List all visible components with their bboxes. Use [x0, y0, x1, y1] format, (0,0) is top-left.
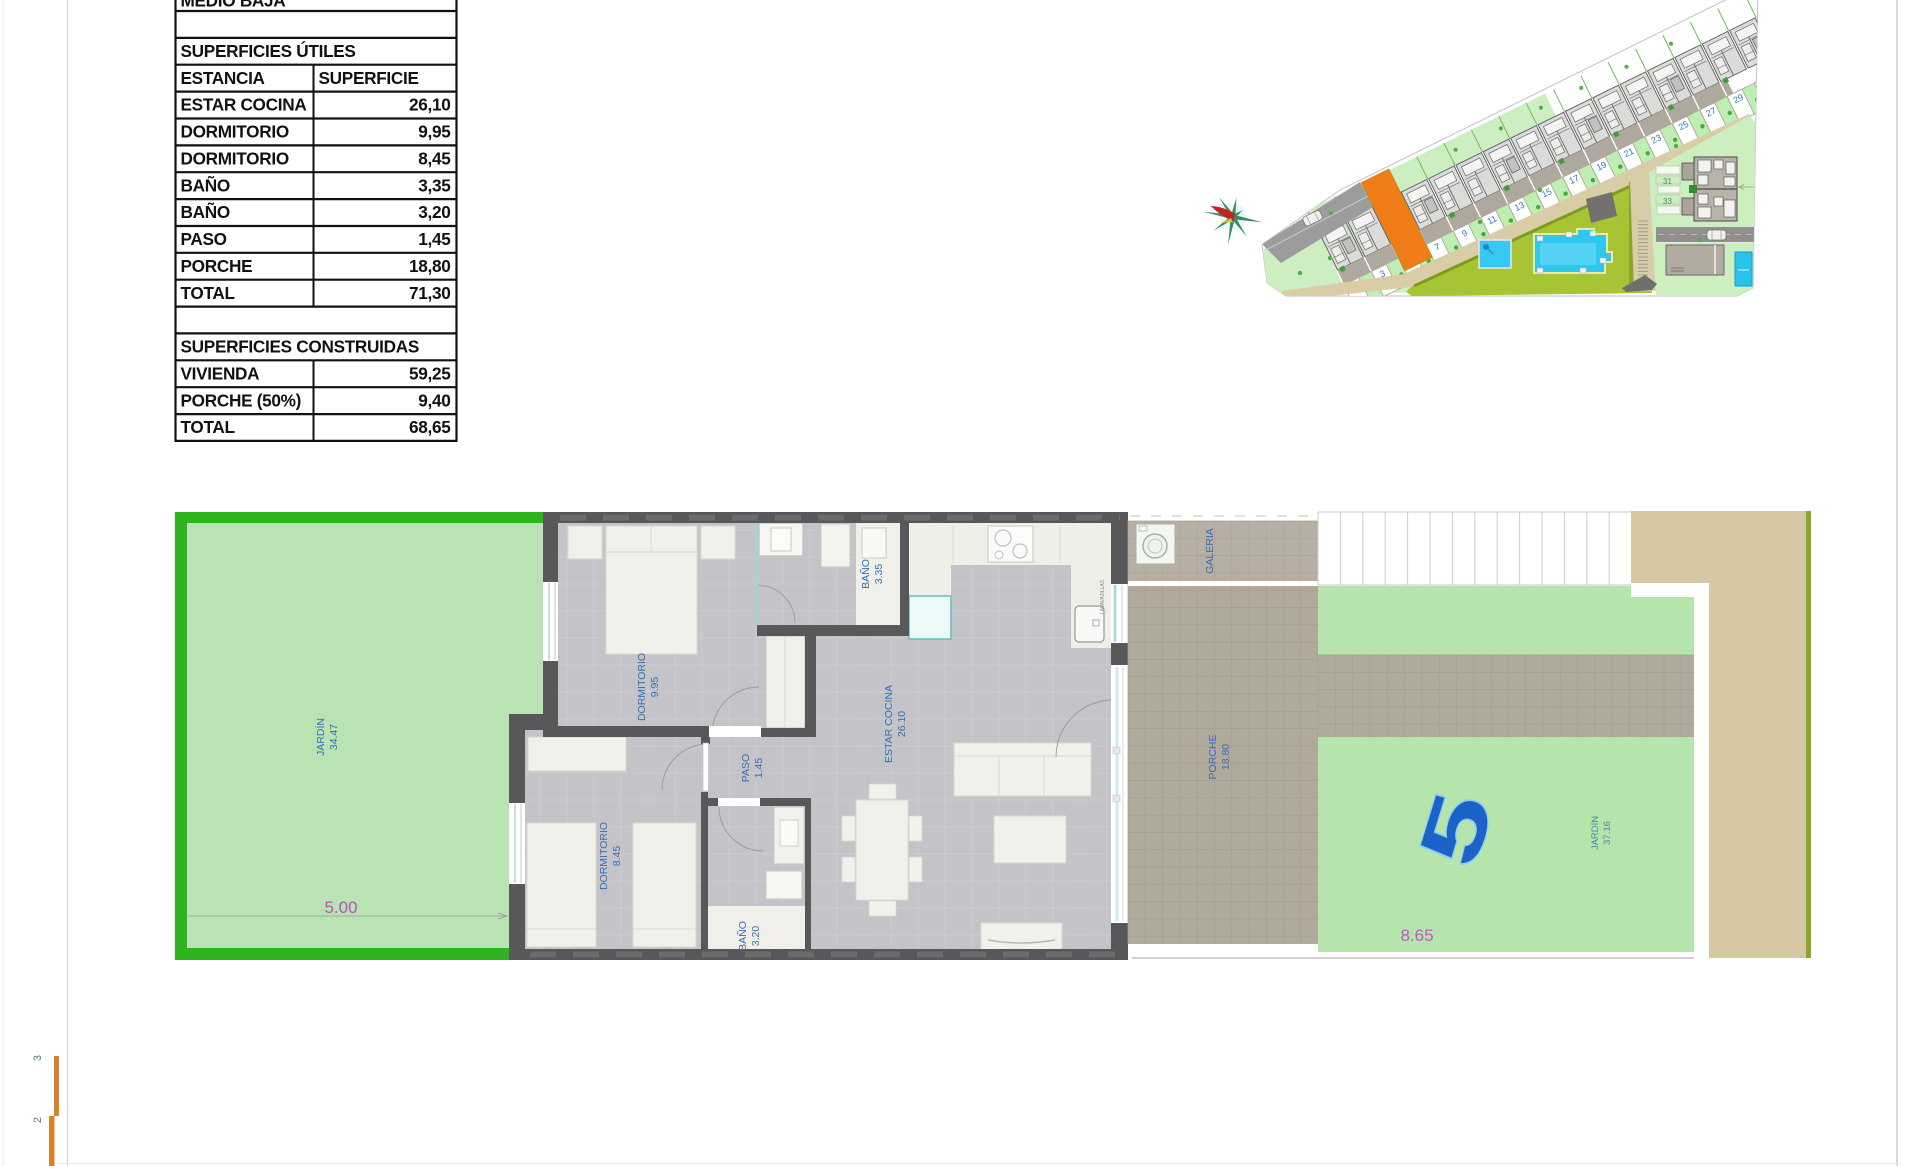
svg-text:LAVAVAJILLAS: LAVAVAJILLAS — [1100, 579, 1106, 614]
svg-text:SUPERFICIE: SUPERFICIE — [319, 68, 419, 88]
svg-text:BAÑO: BAÑO — [181, 175, 230, 195]
svg-text:37.16: 37.16 — [1602, 821, 1613, 845]
svg-text:9,95: 9,95 — [418, 122, 451, 142]
svg-text:JARDÍN: JARDÍN — [314, 718, 327, 756]
svg-text:3: 3 — [32, 1055, 44, 1061]
svg-text:8,45: 8,45 — [418, 148, 451, 168]
svg-text:3.35: 3.35 — [873, 564, 885, 585]
svg-text:SUPERFICIES CONSTRUIDAS: SUPERFICIES CONSTRUIDAS — [181, 337, 420, 357]
svg-text:ESTAR COCINA: ESTAR COCINA — [181, 95, 307, 115]
svg-text:BAÑO: BAÑO — [736, 921, 749, 951]
svg-text:5.00: 5.00 — [324, 898, 357, 917]
svg-text:33: 33 — [1663, 197, 1672, 206]
svg-text:3,20: 3,20 — [418, 202, 450, 222]
svg-text:34.47: 34.47 — [328, 724, 340, 750]
svg-text:SUPERFICIES ÚTILES: SUPERFICIES ÚTILES — [181, 41, 356, 61]
svg-text:9,40: 9,40 — [418, 390, 450, 410]
svg-text:18.80: 18.80 — [1220, 744, 1232, 770]
svg-text:TOTAL: TOTAL — [181, 417, 235, 437]
svg-text:9.95: 9.95 — [649, 677, 661, 698]
svg-text:ESTANCIA: ESTANCIA — [181, 68, 265, 88]
svg-text:59,25: 59,25 — [409, 363, 451, 383]
svg-text:DORMITORIO: DORMITORIO — [598, 822, 610, 890]
svg-text:1,45: 1,45 — [418, 229, 451, 249]
svg-text:BAÑO: BAÑO — [859, 559, 872, 589]
svg-text:PORCHE: PORCHE — [181, 256, 253, 276]
svg-text:PORCHE (50%): PORCHE (50%) — [181, 390, 302, 410]
svg-text:26,10: 26,10 — [409, 95, 451, 115]
svg-text:71,30: 71,30 — [409, 283, 451, 303]
svg-text:8.65: 8.65 — [1400, 926, 1433, 945]
svg-text:1.45: 1.45 — [753, 758, 765, 779]
svg-text:26.10: 26.10 — [896, 711, 908, 737]
svg-text:BAÑO: BAÑO — [181, 202, 230, 222]
svg-text:DORMITORIO: DORMITORIO — [636, 653, 648, 721]
svg-text:PASO: PASO — [740, 754, 752, 782]
svg-text:PORCHE: PORCHE — [1207, 735, 1219, 780]
svg-text:DORMITORIO: DORMITORIO — [181, 148, 289, 168]
svg-text:3.20: 3.20 — [750, 926, 762, 947]
svg-text:VIVIENDA: VIVIENDA — [181, 363, 260, 383]
svg-text:PASO: PASO — [181, 229, 227, 249]
svg-text:ESTAR COCINA: ESTAR COCINA — [883, 685, 895, 763]
svg-text:68,65: 68,65 — [409, 417, 451, 437]
svg-text:JARDÍN: JARDÍN — [1590, 816, 1601, 850]
svg-text:TOTAL: TOTAL — [181, 283, 235, 303]
svg-text:DORMITORIO: DORMITORIO — [181, 122, 289, 142]
svg-text:31: 31 — [1663, 177, 1672, 186]
svg-text:MEDIO BAJA: MEDIO BAJA — [181, 0, 286, 11]
svg-text:2: 2 — [32, 1117, 44, 1123]
svg-text:18,80: 18,80 — [409, 256, 451, 276]
svg-text:3,35: 3,35 — [418, 175, 451, 195]
svg-text:8.45: 8.45 — [611, 846, 623, 867]
svg-text:GALERIA: GALERIA — [1204, 528, 1216, 574]
